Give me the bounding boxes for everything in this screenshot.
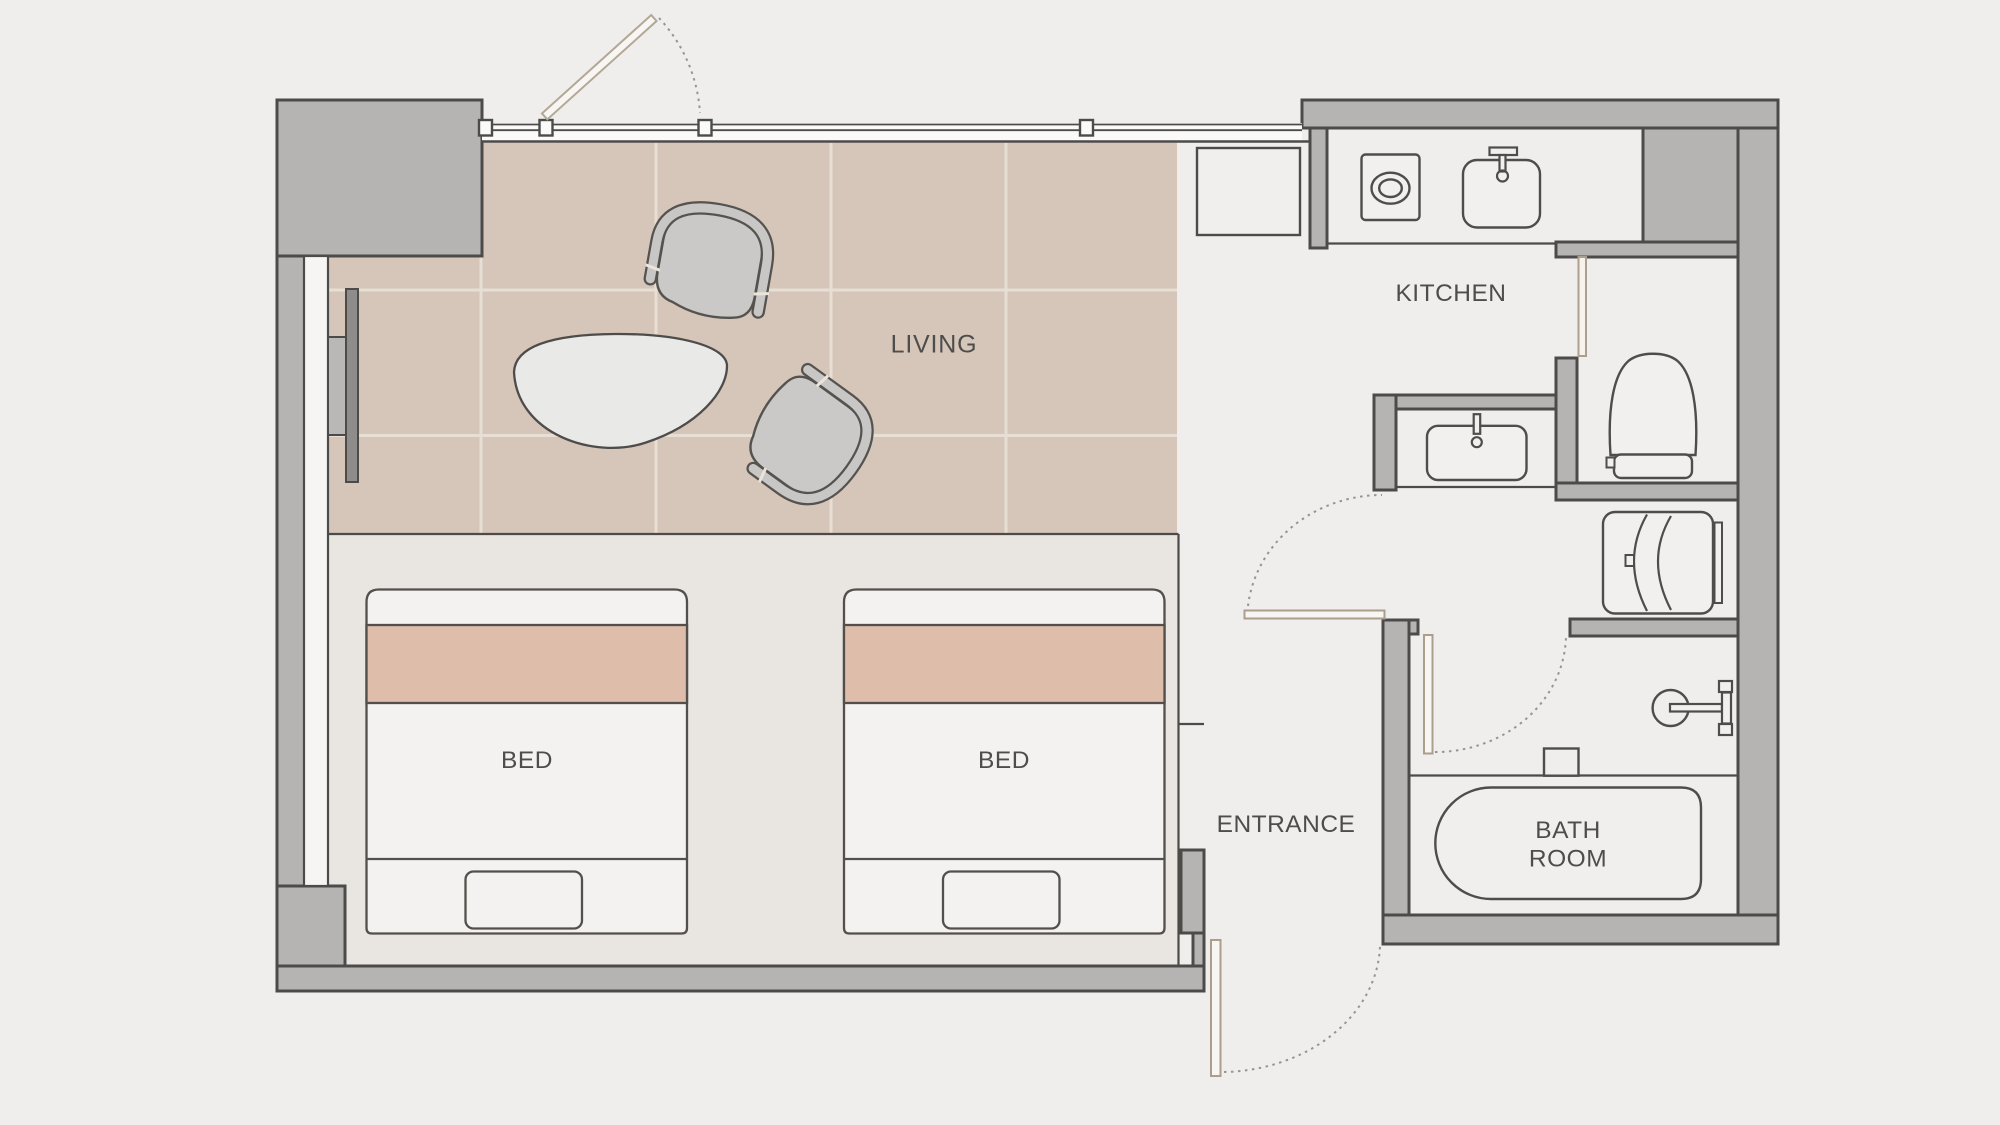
svg-text:BATH: BATH [1535, 817, 1601, 844]
svg-text:ENTRANCE: ENTRANCE [1217, 811, 1356, 838]
svg-text:ROOM: ROOM [1529, 846, 1607, 873]
svg-text:BED: BED [978, 747, 1030, 774]
svg-text:LIVING: LIVING [891, 331, 978, 359]
svg-text:KITCHEN: KITCHEN [1395, 280, 1506, 307]
svg-text:BED: BED [501, 747, 553, 774]
